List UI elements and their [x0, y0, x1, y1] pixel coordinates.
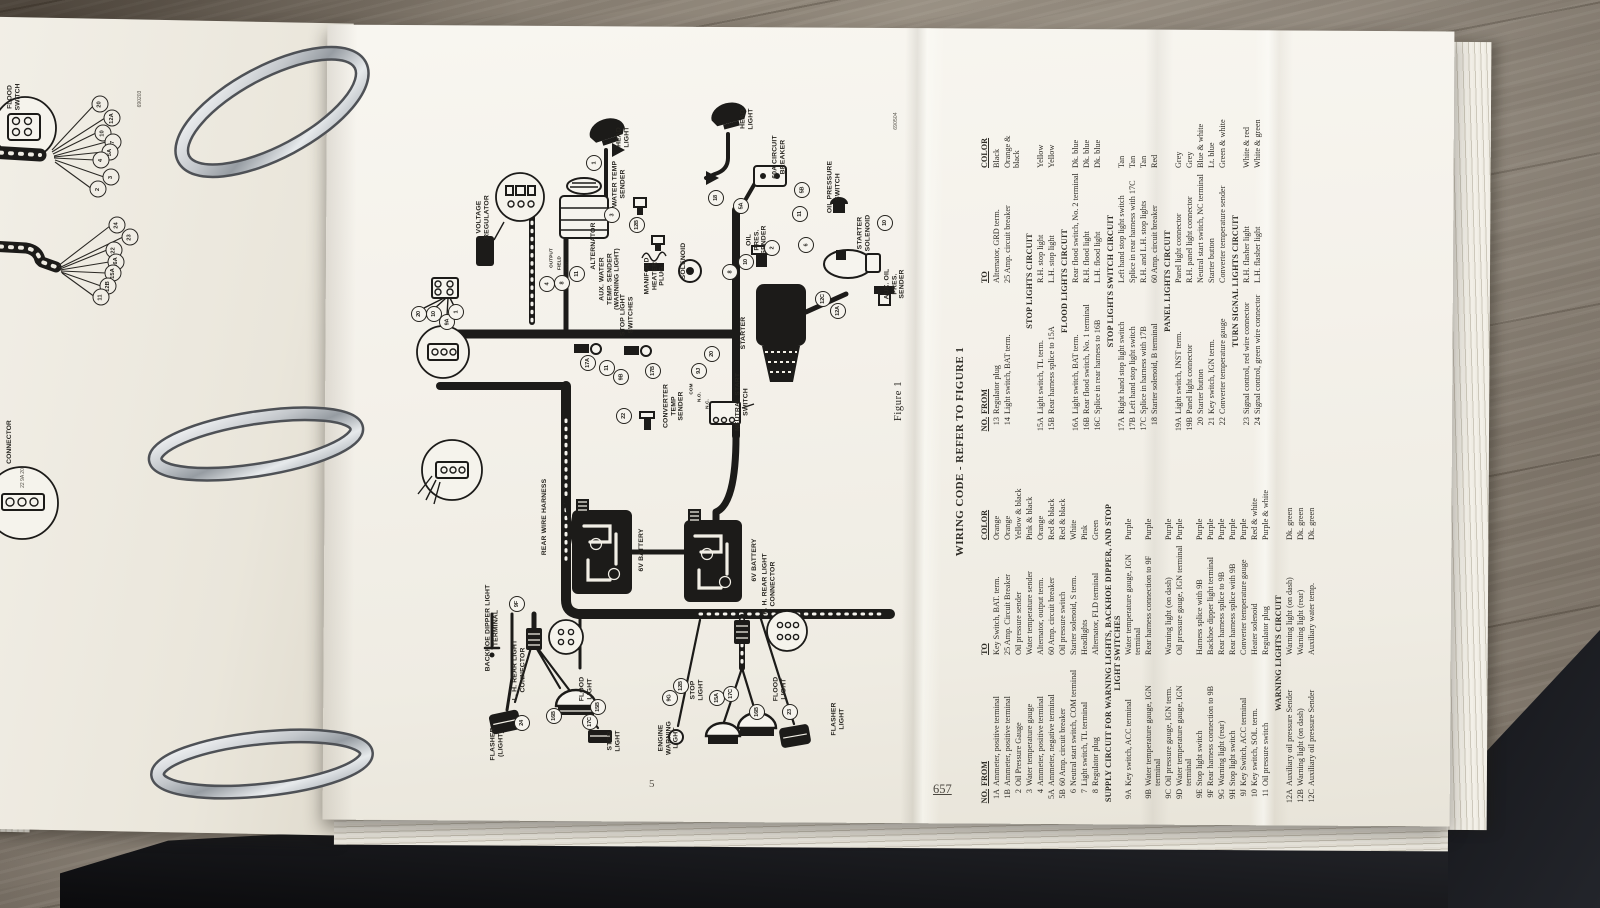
- column-header: NO.: [980, 417, 989, 437]
- to-cell: Warning light (rear): [1296, 543, 1305, 655]
- from-cell: Oil Pressure Gauge: [1014, 658, 1023, 786]
- color-cell: Yellow: [1036, 116, 1045, 168]
- to-cell: R.H. flood light: [1082, 171, 1091, 283]
- table-row: 1BAmmeter, positive terminal25 Amp. Circ…: [1003, 469, 1012, 809]
- to-cell: Regulator plug: [1261, 543, 1270, 655]
- color-cell: Purple: [1217, 488, 1226, 540]
- color-cell: Dk. blue: [1071, 116, 1080, 168]
- from-cell: Stop light switch: [1228, 658, 1237, 786]
- row-number: 20: [1196, 417, 1205, 437]
- from-cell: Ammeter, negative terminal: [1047, 658, 1056, 786]
- row-number: 8: [1091, 789, 1100, 809]
- from-cell: Right hand stop light switch: [1117, 286, 1126, 414]
- row-number: 12B: [1296, 789, 1305, 809]
- to-cell: Alternator, output term.: [1036, 543, 1045, 655]
- to-cell: Warning light (on dash): [1164, 543, 1173, 655]
- table-section-heading: TURN SIGNAL LIGHTS CIRCUIT: [1231, 125, 1240, 437]
- from-cell: Key Switch, ACC terminal: [1239, 658, 1248, 786]
- from-cell: Light switch, BAT term.: [1003, 286, 1021, 414]
- from-cell: Left hand stop light switch: [1128, 286, 1137, 414]
- table-row: 16CSplice in rear harness to 16BL.H. flo…: [1093, 97, 1102, 437]
- to-cell: Key Switch, BAT. term.: [992, 543, 1001, 655]
- row-number: 18: [1150, 417, 1159, 437]
- binder-page-number: 657: [933, 782, 952, 797]
- table-row: 24Signal control, green wire connectorL.…: [1253, 97, 1262, 437]
- table-right-column-group: NO.FROMTOCOLOR13Regulator plugAlternator…: [980, 97, 1264, 437]
- table-section-heading: WARNING LIGHTS CIRCUIT: [1274, 497, 1283, 809]
- table-row: 23Signal control, red wire connectorR.H.…: [1242, 97, 1251, 437]
- row-number: 13: [992, 417, 1001, 437]
- color-cell: Blue & white: [1196, 116, 1205, 168]
- table-row: 15ALight switch, TL term.R.H. stop light…: [1036, 97, 1045, 437]
- row-number: 12C: [1307, 789, 1316, 809]
- row-number: 10: [1250, 789, 1259, 809]
- from-cell: Auxiliary oil pressure Sender: [1307, 658, 1316, 786]
- from-cell: Ammeter, positive terminal: [1003, 658, 1012, 786]
- to-cell: Rear flood switch, No. 2 terminal: [1071, 171, 1080, 283]
- left-page: [0, 17, 354, 836]
- row-number: 4: [1036, 789, 1045, 809]
- to-cell: Converter temperature gauge: [1239, 543, 1248, 655]
- color-cell: Dk. green: [1285, 488, 1294, 540]
- table-row: 9BWater temperature gauge, IGN terminalR…: [1144, 469, 1162, 809]
- to-cell: Warning light (on dash): [1285, 543, 1294, 655]
- from-cell: Auxiliary oil pressure Sender: [1285, 658, 1294, 786]
- color-cell: Lt. blue: [1207, 116, 1216, 168]
- table-row: 7Light switch, TL terminalHeadlightsPink: [1080, 469, 1089, 809]
- color-cell: Tan: [1117, 116, 1126, 168]
- color-cell: Purple: [1206, 488, 1215, 540]
- to-cell: Rear harness splice with 9B: [1228, 543, 1237, 655]
- column-header: FROM: [980, 286, 989, 414]
- color-cell: Orange & black: [1003, 116, 1021, 168]
- color-cell: Tan: [1128, 116, 1137, 168]
- color-cell: Grey: [1185, 116, 1194, 168]
- row-number: 1B: [1003, 789, 1012, 809]
- row-number: 5B: [1058, 789, 1067, 809]
- to-cell: Rear harness connection to 9F: [1144, 543, 1162, 655]
- from-cell: Converter temperature gauge: [1218, 286, 1227, 414]
- from-cell: Regulator plug: [992, 286, 1001, 414]
- color-cell: Yellow & black: [1014, 488, 1023, 540]
- row-number: 15B: [1047, 417, 1056, 437]
- table-row: 11Oil pressure switchRegulator plugPurpl…: [1261, 469, 1270, 809]
- from-cell: Starter button: [1196, 286, 1205, 414]
- color-cell: Purple: [1228, 488, 1237, 540]
- color-cell: White & red: [1242, 116, 1251, 168]
- from-cell: Warning light (rear): [1217, 658, 1226, 786]
- table-row: 14Light switch, BAT term.25 Amp. circuit…: [1003, 97, 1021, 437]
- from-cell: Light switch, BAT term.: [1071, 286, 1080, 414]
- from-cell: Regulator plug: [1091, 658, 1100, 786]
- table-row: 19ALight switch, INST term.Panel light c…: [1174, 97, 1183, 437]
- color-cell: Dk. blue: [1082, 116, 1091, 168]
- color-cell: Dk. green: [1307, 488, 1316, 540]
- wiring-code-table-content: WIRING CODE - REFER TO FIGURE 1 NO.FROMT…: [952, 88, 1449, 815]
- table-row: 6Neutral start switch, COM terminalStart…: [1069, 469, 1078, 809]
- table-section-heading: SUPPLY CIRCUIT FOR WARNING LIGHTS, BACKH…: [1104, 497, 1122, 809]
- row-number: 16C: [1093, 417, 1102, 437]
- to-cell: Water temperature gauge, IGN terminal: [1124, 543, 1142, 655]
- from-cell: Key switch, ACC terminal: [1124, 658, 1142, 786]
- table-row: 4Ammeter, positive terminalAlternator, o…: [1036, 469, 1045, 809]
- from-cell: Signal control, red wire connector: [1242, 286, 1251, 414]
- row-number: 6: [1069, 789, 1078, 809]
- table-row: 9AKey switch, ACC terminalWater temperat…: [1124, 469, 1142, 809]
- from-cell: Water temperature gauge, IGN terminal: [1144, 658, 1162, 786]
- table-row: 10Key switch, SOL. term.Heater solenoidR…: [1250, 469, 1259, 809]
- to-cell: Heater solenoid: [1250, 543, 1259, 655]
- table-row: 19BPanel light connectorR.H. panel light…: [1185, 97, 1194, 437]
- row-number: 19A: [1174, 417, 1183, 437]
- column-header: TO: [980, 171, 989, 283]
- to-cell: Starter button: [1207, 171, 1216, 283]
- from-cell: Warning light (on dash): [1296, 658, 1305, 786]
- row-number: 9A: [1124, 789, 1142, 809]
- row-number: 17B: [1128, 417, 1137, 437]
- binder-photo-scene: FLOOD SWITCH CONNECTOR 690203 22 9A 20 2…: [0, 0, 1600, 908]
- from-cell: Key switch, SOL. term.: [1250, 658, 1259, 786]
- table-row: 17ARight hand stop light switchLeft hand…: [1117, 97, 1126, 437]
- table-row: 1AAmmeter, positive terminalKey Switch, …: [992, 469, 1001, 809]
- row-number: 7: [1080, 789, 1089, 809]
- table-row: 9FRear harness connection to 9BBackhoe d…: [1206, 469, 1215, 809]
- row-number: 11: [1261, 789, 1270, 809]
- table-row: 22Converter temperature gaugeConverter t…: [1218, 97, 1227, 437]
- from-cell: Stop light switch: [1195, 658, 1204, 786]
- color-cell: Purple: [1195, 488, 1204, 540]
- row-number: 16B: [1082, 417, 1091, 437]
- table-row: 20Starter buttonNeutral start switch, NC…: [1196, 97, 1205, 437]
- color-cell: White & green: [1253, 116, 1262, 168]
- color-cell: Purple: [1124, 488, 1142, 540]
- table-row: 18Starter solenoid, B terminal60 Amp. ci…: [1150, 97, 1159, 437]
- color-cell: Purple: [1164, 488, 1173, 540]
- row-number: 9D: [1175, 789, 1193, 809]
- color-cell: Orange: [992, 488, 1001, 540]
- row-number: 17A: [1117, 417, 1126, 437]
- table-row: 3Water temperature gaugeWater temperatur…: [1025, 469, 1034, 809]
- color-cell: Yellow: [1047, 116, 1056, 168]
- from-cell: Neutral start switch, COM terminal: [1069, 658, 1078, 786]
- table-row: 2Oil Pressure GaugeOil pressure senderYe…: [1014, 469, 1023, 809]
- color-cell: Red & black: [1047, 488, 1056, 540]
- table-row: 16BRear flood switch, No. 1 terminalR.H.…: [1082, 97, 1091, 437]
- color-cell: Orange: [1036, 488, 1045, 540]
- to-cell: L.H. flasher light: [1253, 171, 1262, 283]
- color-cell: Purple: [1175, 488, 1193, 540]
- to-cell: Water temperature sender: [1025, 543, 1034, 655]
- wiring-code-table: WIRING CODE - REFER TO FIGURE 1 NO.FROMT…: [952, 88, 1449, 815]
- color-cell: Black: [992, 116, 1001, 168]
- from-cell: Rear harness splice to 15A: [1047, 286, 1056, 414]
- color-cell: Purple & white: [1261, 488, 1270, 540]
- table-row: 21Key switch, IGN term.Starter buttonLt.…: [1207, 97, 1216, 437]
- color-cell: Pink: [1080, 488, 1089, 540]
- to-cell: Alternator, FLD terminal: [1091, 543, 1100, 655]
- to-cell: Converter temperature sender: [1218, 171, 1227, 283]
- color-cell: Green & white: [1218, 116, 1227, 168]
- to-cell: 60 Amp. circuit breaker: [1047, 543, 1056, 655]
- table-section-heading: STOP LIGHTS CIRCUIT: [1025, 125, 1034, 437]
- to-cell: R.H. stop light: [1036, 171, 1045, 283]
- row-number: 9G: [1217, 789, 1226, 809]
- table-title: WIRING CODE - REFER TO FIGURE 1: [954, 88, 966, 815]
- to-cell: Backhoe dipper light terminal: [1206, 543, 1215, 655]
- row-number: 22: [1218, 417, 1227, 437]
- table-row: 17CSplice in harness with 17BR.H. and L.…: [1139, 97, 1148, 437]
- table-row: 12BWarning light (on dash)Warning light …: [1296, 469, 1305, 809]
- to-cell: 60 Amp. circuit breaker: [1150, 171, 1159, 283]
- to-cell: L.H. stop light: [1047, 171, 1056, 283]
- to-cell: Splice in rear harness with 17C: [1128, 171, 1137, 283]
- row-number: 16A: [1071, 417, 1080, 437]
- table-row: 12AAuxiliary oil pressure SenderWarning …: [1285, 469, 1294, 809]
- to-cell: R.H. and L.H. stop lights: [1139, 171, 1148, 283]
- table-row: 17BLeft hand stop light switchSplice in …: [1128, 97, 1137, 437]
- to-cell: R.H. flasher light: [1242, 171, 1251, 283]
- table-row: 12CAuxiliary oil pressure SenderAuxiliar…: [1307, 469, 1316, 809]
- color-cell: Green: [1091, 488, 1100, 540]
- row-number: 15A: [1036, 417, 1045, 437]
- row-number: 14: [1003, 417, 1021, 437]
- color-cell: Dk. green: [1296, 488, 1305, 540]
- column-header: FROM: [980, 658, 989, 786]
- table-row: 9HStop light switchRear harness splice w…: [1228, 469, 1237, 809]
- to-cell: Headlights: [1080, 543, 1089, 655]
- table-row: 9EStop light switchHarness splice with 9…: [1195, 469, 1204, 809]
- color-cell: Pink & black: [1025, 488, 1034, 540]
- table-row: 5AAmmeter, negative terminal60 Amp. circ…: [1047, 469, 1056, 809]
- row-number: 9E: [1195, 789, 1204, 809]
- row-number: 5A: [1047, 789, 1056, 809]
- color-cell: Dk. blue: [1093, 116, 1102, 168]
- to-cell: 25 Amp. Circuit Breaker: [1003, 543, 1012, 655]
- table-row: 13Regulator plugAlternator, GRD term.Bla…: [992, 97, 1001, 437]
- table-row: 16ALight switch, BAT term.Rear flood swi…: [1071, 97, 1080, 437]
- to-cell: Oil pressure gauge, IGN terminal: [1175, 543, 1193, 655]
- table-left-column-group: NO.FROMTOCOLOR1AAmmeter, positive termin…: [980, 469, 1318, 809]
- color-cell: Purple: [1144, 488, 1162, 540]
- table-row: 9DWater temperature gauge, IGN terminalO…: [1175, 469, 1193, 809]
- to-cell: Harness splice with 9B: [1195, 543, 1204, 655]
- from-cell: Panel light connector: [1185, 286, 1194, 414]
- row-number: 19B: [1185, 417, 1194, 437]
- from-cell: Oil pressure switch: [1261, 658, 1270, 786]
- from-cell: Rear harness connection to 9B: [1206, 658, 1215, 786]
- to-cell: L.H. flood light: [1093, 171, 1102, 283]
- to-cell: Oil pressure sender: [1014, 543, 1023, 655]
- color-cell: Red: [1150, 116, 1159, 168]
- table-row: 9JKey Switch, ACC terminalConverter temp…: [1239, 469, 1248, 809]
- row-number: 24: [1253, 417, 1262, 437]
- to-cell: Alternator, GRD term.: [992, 171, 1001, 283]
- column-header: COLOR: [980, 488, 989, 540]
- from-cell: Oil pressure gauge, IGN term.: [1164, 658, 1173, 786]
- page-number: 5: [649, 778, 655, 790]
- to-cell: Neutral start switch, NC terminal: [1196, 171, 1205, 283]
- from-cell: Starter solenoid, B terminal: [1150, 286, 1159, 414]
- from-cell: Signal control, green wire connector: [1253, 286, 1262, 414]
- table-row: 15BRear harness splice to 15AL.H. stop l…: [1047, 97, 1056, 437]
- from-cell: Light switch, TL terminal: [1080, 658, 1089, 786]
- to-cell: Panel light connector: [1174, 171, 1183, 283]
- row-number: 9J: [1239, 789, 1248, 809]
- from-cell: Light switch, TL term.: [1036, 286, 1045, 414]
- from-cell: Splice in harness with 17B: [1139, 286, 1148, 414]
- from-cell: Splice in rear harness to 16B: [1093, 286, 1102, 414]
- table-section-heading: STOP LIGHTS SWITCH CIRCUIT: [1106, 125, 1115, 437]
- column-header: TO: [980, 543, 989, 655]
- table-section-heading: PANEL LIGHTS CIRCUIT: [1163, 125, 1172, 437]
- from-cell: 60 Amp. circuit breaker: [1058, 658, 1067, 786]
- from-cell: Ammeter, positive terminal: [1036, 658, 1045, 786]
- row-number: 3: [1025, 789, 1034, 809]
- color-cell: White: [1069, 488, 1078, 540]
- row-number: 12A: [1285, 789, 1294, 809]
- table-row: 9GWarning light (rear)Rear harness splic…: [1217, 469, 1226, 809]
- row-number: 21: [1207, 417, 1216, 437]
- color-cell: Red & white: [1250, 488, 1259, 540]
- row-number: 17C: [1139, 417, 1148, 437]
- to-cell: 25 Amp. circuit breaker: [1003, 171, 1021, 283]
- column-header: NO.: [980, 789, 989, 809]
- table-row: 9COil pressure gauge, IGN term.Warning l…: [1164, 469, 1173, 809]
- from-cell: Light switch, INST term.: [1174, 286, 1183, 414]
- column-header: COLOR: [980, 116, 989, 168]
- from-cell: Water temperature gauge: [1025, 658, 1034, 786]
- color-cell: Orange: [1003, 488, 1012, 540]
- table-section-heading: FLOOD LIGHTS CIRCUIT: [1060, 125, 1069, 437]
- table-header-row: NO.FROMTOCOLOR: [980, 469, 989, 809]
- color-cell: Purple: [1239, 488, 1248, 540]
- to-cell: Oil pressure switch: [1058, 543, 1067, 655]
- row-number: 9H: [1228, 789, 1237, 809]
- to-cell: Auxiliary water temp.: [1307, 543, 1316, 655]
- row-number: 23: [1242, 417, 1251, 437]
- color-cell: Grey: [1174, 116, 1183, 168]
- row-number: 1A: [992, 789, 1001, 809]
- color-cell: Tan: [1139, 116, 1148, 168]
- from-cell: Key switch, IGN term.: [1207, 286, 1216, 414]
- table-row: 8Regulator plugAlternator, FLD terminalG…: [1091, 469, 1100, 809]
- table-row: 5B60 Amp. circuit breakerOil pressure sw…: [1058, 469, 1067, 809]
- to-cell: R.H. panel light connector: [1185, 171, 1194, 283]
- row-number: 9C: [1164, 789, 1173, 809]
- to-cell: Left hand stop light switch: [1117, 171, 1126, 283]
- row-number: 2: [1014, 789, 1023, 809]
- row-number: 9F: [1206, 789, 1215, 809]
- from-cell: Water temperature gauge, IGN terminal: [1175, 658, 1193, 786]
- from-cell: Rear flood switch, No. 1 terminal: [1082, 286, 1091, 414]
- from-cell: Ammeter, positive terminal: [992, 658, 1001, 786]
- to-cell: Rear harness splice to 9B: [1217, 543, 1226, 655]
- row-number: 9B: [1144, 789, 1162, 809]
- to-cell: Starter solenoid, S term.: [1069, 543, 1078, 655]
- color-cell: Red & black: [1058, 488, 1067, 540]
- table-header-row: NO.FROMTOCOLOR: [980, 97, 989, 437]
